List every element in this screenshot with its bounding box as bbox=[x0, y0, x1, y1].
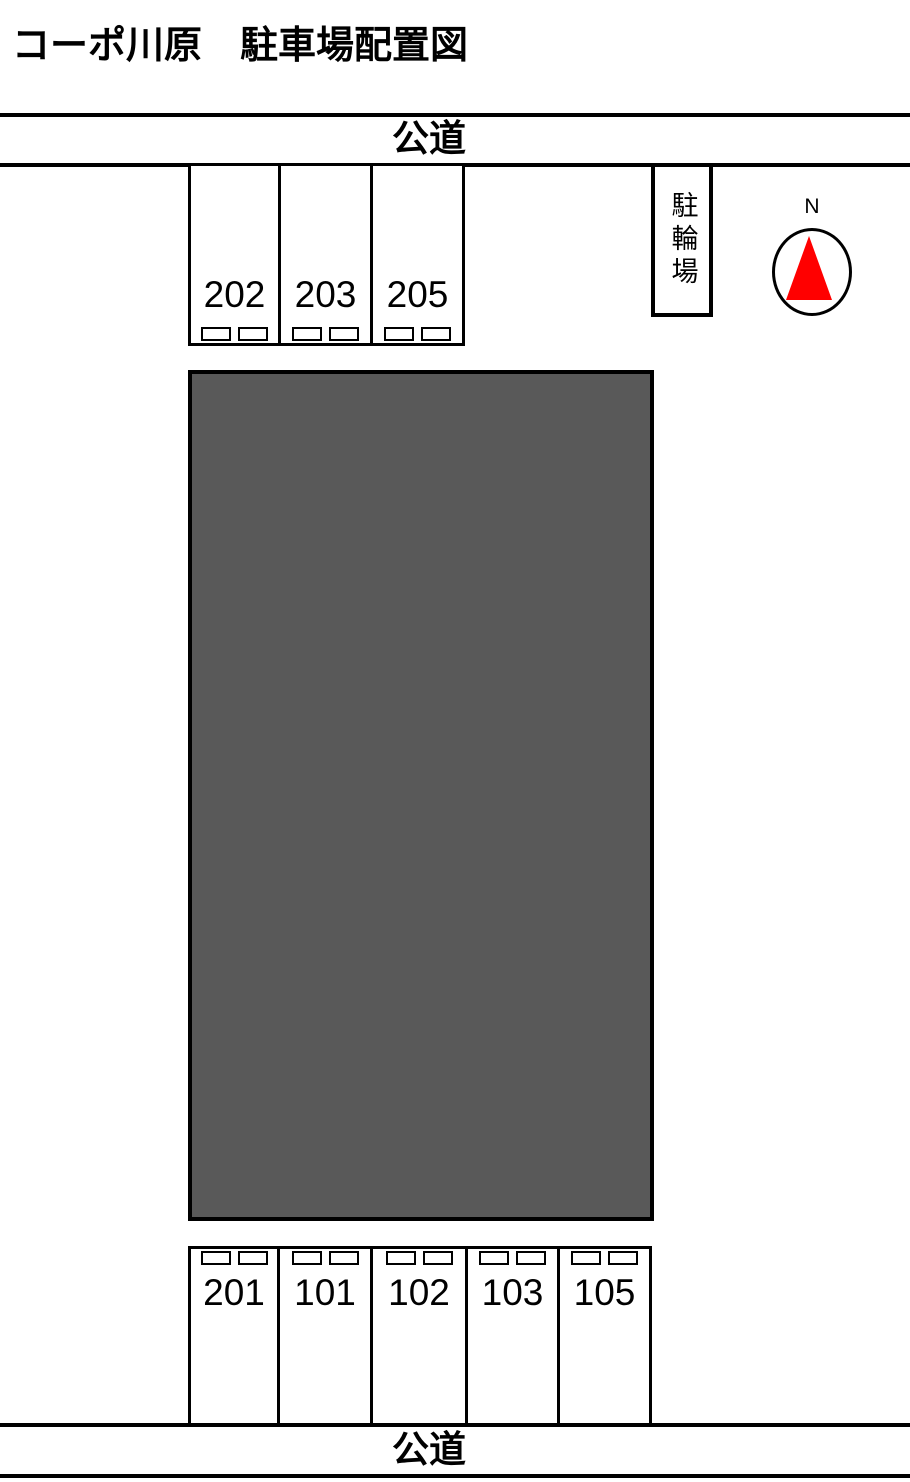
wheel-stop-icon bbox=[571, 1251, 601, 1265]
wheel-stops bbox=[560, 1251, 649, 1265]
compass-north-label: N bbox=[772, 195, 852, 219]
wheel-stop-icon bbox=[516, 1251, 546, 1265]
top-road-upper-line bbox=[0, 113, 910, 117]
wheel-stop-icon bbox=[329, 327, 359, 341]
parking-space-203: 203 bbox=[278, 163, 373, 346]
bottom-road-upper-line bbox=[0, 1423, 910, 1427]
bicycle-parking-box: 駐輪場 bbox=[651, 163, 713, 317]
parking-space-201: 201 bbox=[188, 1246, 280, 1427]
page-title: コーポ川原 駐車場配置図 bbox=[12, 14, 468, 69]
wheel-stop-icon bbox=[238, 327, 268, 341]
wheel-stop-icon bbox=[201, 1251, 231, 1265]
parking-space-101: 101 bbox=[277, 1246, 373, 1427]
wheel-stop-icon bbox=[421, 327, 451, 341]
parking-space-202: 202 bbox=[188, 163, 281, 346]
space-number: 102 bbox=[373, 1274, 465, 1311]
parking-space-102: 102 bbox=[370, 1246, 468, 1427]
wheel-stops bbox=[280, 1251, 370, 1265]
space-number: 105 bbox=[560, 1274, 649, 1311]
space-number: 202 bbox=[191, 276, 278, 313]
space-number: 103 bbox=[468, 1274, 557, 1311]
north-arrow-icon bbox=[786, 236, 832, 300]
wheel-stop-icon bbox=[608, 1251, 638, 1265]
bottom-road-label: 公道 bbox=[329, 1430, 529, 1470]
space-number: 205 bbox=[373, 276, 462, 313]
space-number: 201 bbox=[191, 1274, 277, 1311]
building-block bbox=[188, 370, 654, 1221]
space-number: 101 bbox=[280, 1274, 370, 1311]
space-number: 203 bbox=[281, 276, 370, 313]
bottom-road-lower-line bbox=[0, 1474, 910, 1478]
wheel-stops bbox=[468, 1251, 557, 1265]
wheel-stop-icon bbox=[423, 1251, 453, 1265]
wheel-stop-icon bbox=[292, 1251, 322, 1265]
wheel-stop-icon bbox=[384, 327, 414, 341]
wheel-stop-icon bbox=[329, 1251, 359, 1265]
parking-layout-diagram: コーポ川原 駐車場配置図 公道 202 203 205 駐輪場 N bbox=[0, 0, 910, 1482]
parking-space-103: 103 bbox=[465, 1246, 560, 1427]
wheel-stops bbox=[373, 327, 462, 341]
top-road-label: 公道 bbox=[329, 119, 529, 159]
wheel-stops bbox=[281, 327, 370, 341]
parking-space-105: 105 bbox=[557, 1246, 652, 1427]
wheel-stop-icon bbox=[479, 1251, 509, 1265]
wheel-stop-icon bbox=[292, 327, 322, 341]
wheel-stop-icon bbox=[386, 1251, 416, 1265]
parking-space-205: 205 bbox=[370, 163, 465, 346]
wheel-stops bbox=[191, 327, 278, 341]
bicycle-parking-label: 駐輪場 bbox=[669, 191, 696, 290]
wheel-stops bbox=[191, 1251, 277, 1265]
wheel-stop-icon bbox=[201, 327, 231, 341]
wheel-stop-icon bbox=[238, 1251, 268, 1265]
wheel-stops bbox=[373, 1251, 465, 1265]
